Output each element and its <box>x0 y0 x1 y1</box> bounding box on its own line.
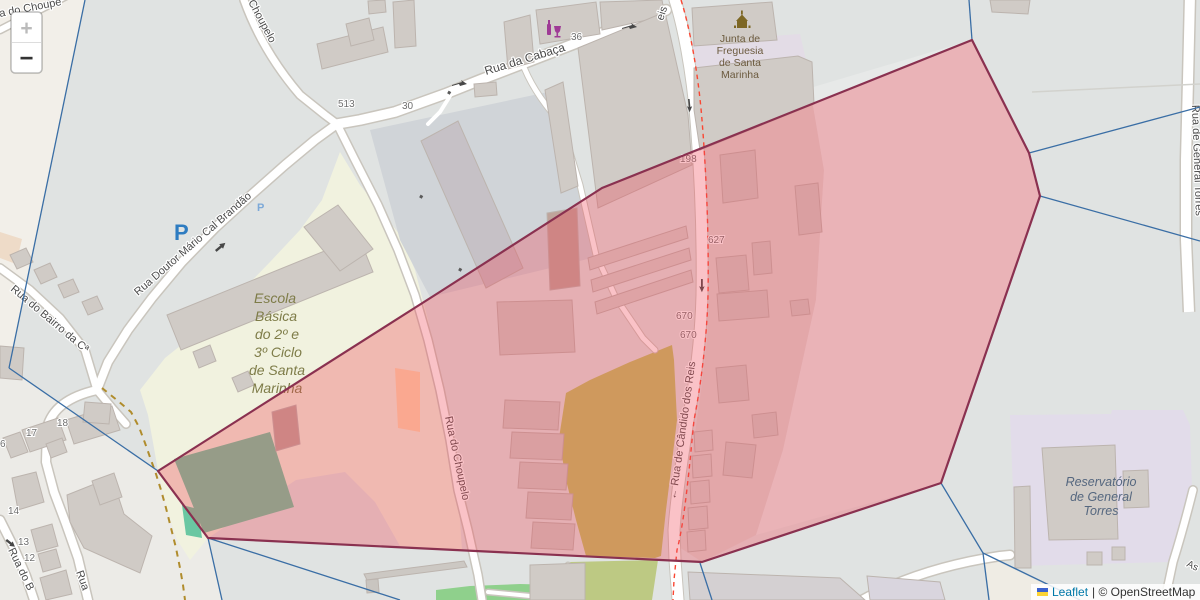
svg-text:36: 36 <box>571 32 583 43</box>
svg-text:30: 30 <box>402 101 414 112</box>
svg-text:12: 12 <box>24 553 36 564</box>
svg-text:13: 13 <box>18 537 30 548</box>
svg-text:P: P <box>257 202 264 214</box>
svg-text:| © OpenStreetMap: | © OpenStreetMap <box>1092 585 1196 599</box>
svg-text:513: 513 <box>338 99 355 110</box>
svg-text:17: 17 <box>26 428 38 439</box>
svg-text:Torres: Torres <box>1084 504 1119 518</box>
svg-text:18: 18 <box>57 418 69 429</box>
svg-text:Marinha: Marinha <box>721 69 759 81</box>
svg-text:Reservatório: Reservatório <box>1066 475 1137 489</box>
svg-text:P: P <box>174 220 189 245</box>
svg-text:+: + <box>20 17 32 40</box>
svg-text:−: − <box>19 45 33 72</box>
svg-text:de Santa: de Santa <box>249 362 305 378</box>
svg-text:do 2º e: do 2º e <box>255 326 299 342</box>
svg-text:3º Ciclo: 3º Ciclo <box>254 344 302 360</box>
svg-text:Freguesia: Freguesia <box>717 45 764 57</box>
svg-text:de General: de General <box>1070 490 1133 504</box>
svg-text:14: 14 <box>8 506 20 517</box>
svg-text:Escola: Escola <box>254 290 296 306</box>
svg-text:Junta de: Junta de <box>720 33 760 45</box>
svg-text:Básica: Básica <box>255 308 297 324</box>
svg-text:Leaflet: Leaflet <box>1052 585 1089 599</box>
svg-text:de Santa: de Santa <box>719 57 761 69</box>
svg-text:6: 6 <box>0 439 6 450</box>
